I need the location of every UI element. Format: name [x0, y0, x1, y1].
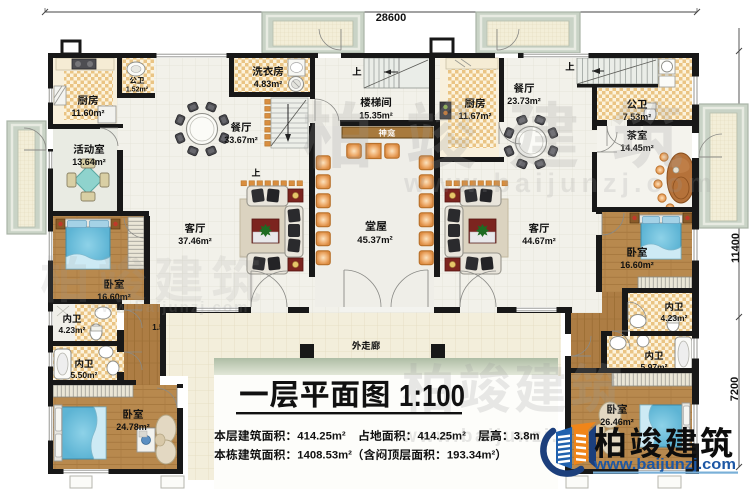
- svg-text:33.67m²: 33.67m²: [224, 135, 258, 145]
- svg-text:11400: 11400: [730, 233, 742, 263]
- svg-text:5.50m²: 5.50m²: [71, 370, 98, 380]
- svg-text:4.23m²: 4.23m²: [59, 325, 86, 335]
- svg-text:24.78m²: 24.78m²: [116, 422, 150, 432]
- svg-text:11.60m²: 11.60m²: [72, 108, 105, 118]
- svg-text:414.25m²: 414.25m²: [418, 431, 467, 443]
- svg-text:4.23m²: 4.23m²: [661, 313, 688, 323]
- svg-text:414.25m²: 414.25m²: [297, 431, 346, 443]
- svg-text:1:100: 1:100: [399, 378, 465, 413]
- svg-text:1.52m²: 1.52m²: [126, 87, 149, 94]
- svg-text:www.baijunzj.com: www.baijunzj.com: [87, 299, 249, 316]
- svg-text:4.83m²: 4.83m²: [254, 79, 283, 89]
- svg-text:37.46m²: 37.46m²: [178, 236, 212, 246]
- svg-text:28600: 28600: [376, 12, 407, 24]
- svg-text:16.60m²: 16.60m²: [620, 260, 654, 270]
- svg-text:1408.53m²: 1408.53m²: [297, 450, 352, 462]
- svg-text:3.8m: 3.8m: [514, 431, 540, 443]
- svg-text:45.37m²: 45.37m²: [357, 235, 392, 246]
- svg-text:193.34m²: 193.34m²: [447, 450, 496, 462]
- svg-text:www.baijunzj.com: www.baijunzj.com: [403, 168, 717, 198]
- svg-text:23.73m²: 23.73m²: [507, 96, 541, 106]
- svg-text:44.67m²: 44.67m²: [522, 236, 556, 246]
- svg-text:13.64m²: 13.64m²: [72, 157, 106, 167]
- svg-text:7200: 7200: [729, 377, 741, 401]
- svg-text:www.baijunzj.com: www.baijunzj.com: [593, 456, 736, 473]
